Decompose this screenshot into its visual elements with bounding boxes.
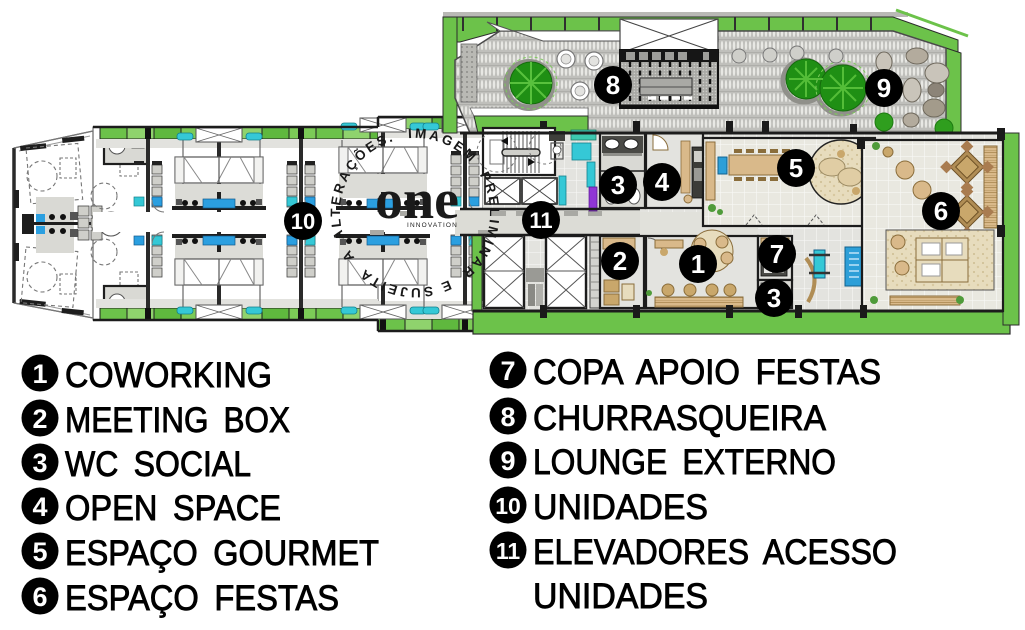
svg-text:4: 4 [32,492,47,522]
svg-text:LOUNGE EXTERNO: LOUNGE EXTERNO [533,443,836,482]
svg-text:9: 9 [500,446,515,476]
svg-text:10: 10 [291,209,315,234]
svg-text:ESPAÇO GOURMET: ESPAÇO GOURMET [65,534,379,573]
svg-text:8: 8 [500,402,515,432]
svg-text:MEETING BOX: MEETING BOX [65,401,290,440]
svg-text:6: 6 [32,582,47,612]
svg-text:4: 4 [655,167,670,197]
svg-text:ESPAÇO FESTAS: ESPAÇO FESTAS [65,579,339,618]
svg-text:INNOVATION: INNOVATION [407,222,458,229]
svg-text:7: 7 [770,239,784,269]
svg-text:2: 2 [32,404,47,434]
svg-text:9: 9 [877,73,891,103]
svg-text:10: 10 [495,493,521,519]
svg-text:7: 7 [500,356,515,386]
svg-text:2: 2 [613,246,627,276]
svg-text:OPEN SPACE: OPEN SPACE [65,489,281,528]
svg-text:ELEVADORES ACESSO: ELEVADORES ACESSO [533,533,897,572]
svg-text:1: 1 [32,359,47,389]
svg-text:5: 5 [789,153,803,183]
svg-text:8: 8 [606,70,620,100]
svg-text:6: 6 [934,196,948,226]
svg-text:COPA APOIO FESTAS: COPA APOIO FESTAS [533,353,881,392]
svg-text:1: 1 [691,249,705,279]
svg-text:UNIDADES: UNIDADES [533,488,708,527]
svg-text:CHURRASQUEIRA: CHURRASQUEIRA [533,399,827,438]
svg-text:5: 5 [32,537,47,567]
svg-text:3: 3 [611,170,625,200]
svg-text:3: 3 [767,283,781,313]
svg-text:11: 11 [496,538,521,564]
svg-text:3: 3 [32,448,47,478]
svg-text:UNIDADES: UNIDADES [533,577,708,616]
svg-text:11: 11 [529,208,552,233]
svg-text:COWORKING: COWORKING [65,356,272,395]
svg-text:WC SOCIAL: WC SOCIAL [65,445,251,484]
